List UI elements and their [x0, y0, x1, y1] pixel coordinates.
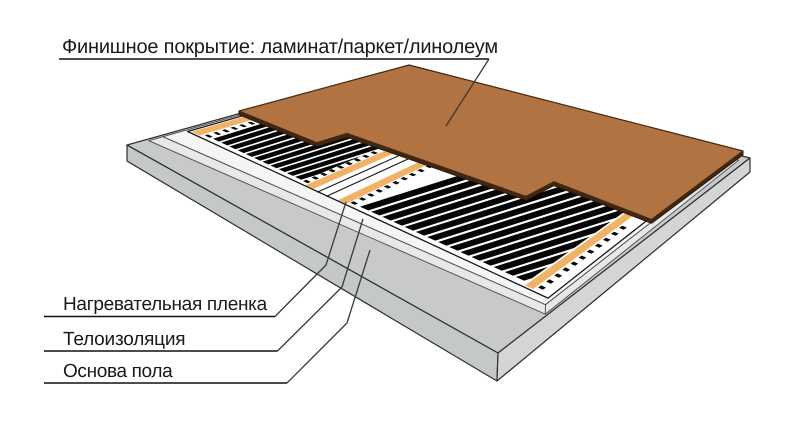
svg-text:Основа пола: Основа пола: [63, 361, 173, 382]
svg-text:Телоизоляция: Телоизоляция: [63, 329, 185, 350]
svg-text:Финишное покрытие: ламинат/пар: Финишное покрытие: ламинат/паркет/линоле…: [62, 36, 498, 58]
svg-text:Нагревательная пленка: Нагревательная пленка: [63, 294, 268, 315]
